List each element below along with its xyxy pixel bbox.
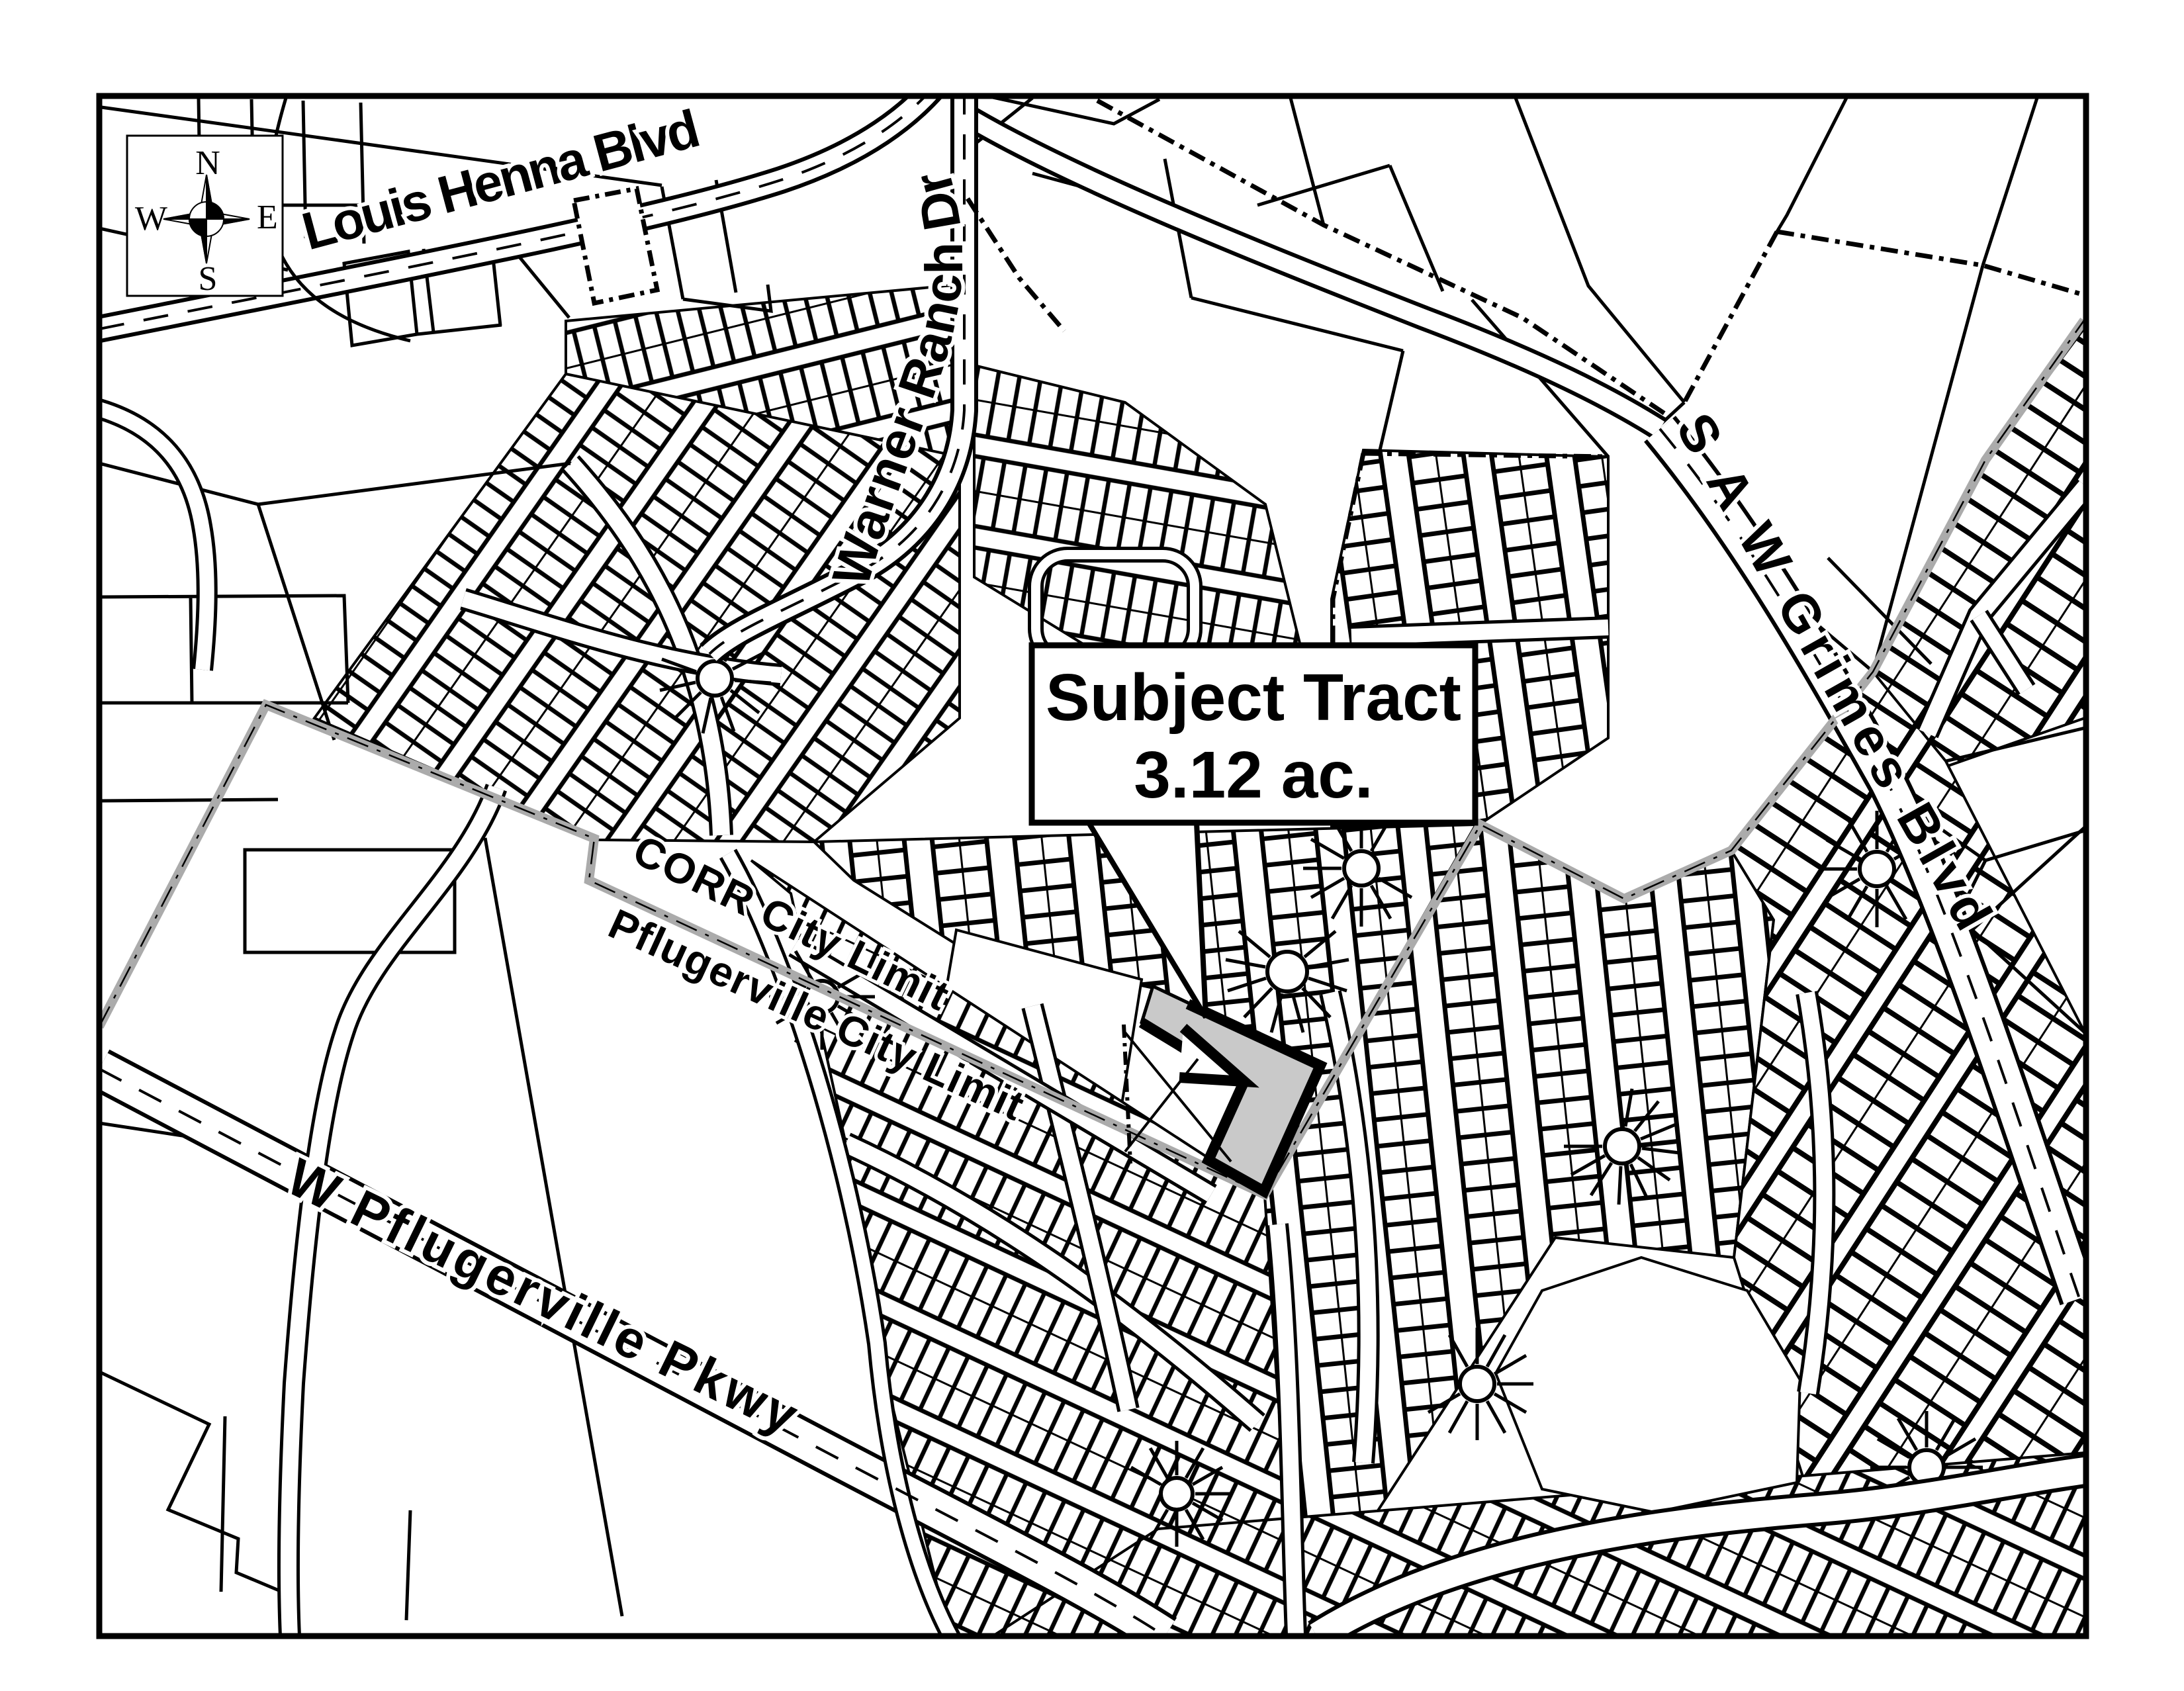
svg-text:3.12 ac.: 3.12 ac. <box>1134 738 1373 812</box>
svg-text:S: S <box>199 260 218 298</box>
svg-text:N: N <box>195 144 220 182</box>
svg-text:E: E <box>257 199 278 236</box>
svg-text:Subject Tract: Subject Tract <box>1046 661 1461 735</box>
svg-text:W: W <box>135 200 167 238</box>
